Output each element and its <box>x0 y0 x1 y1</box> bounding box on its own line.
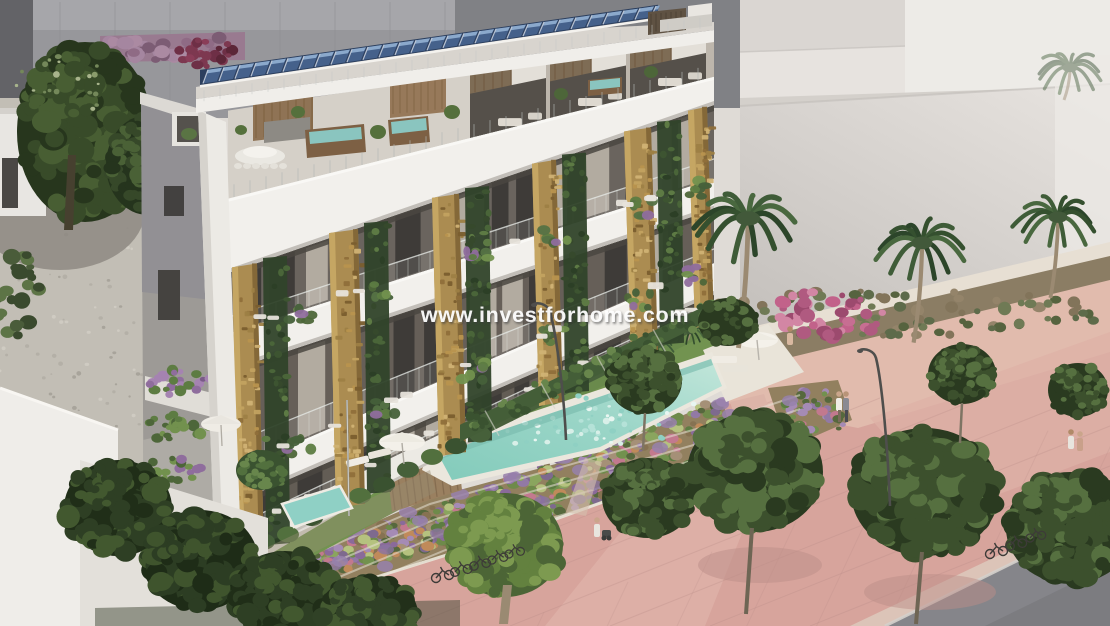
svg-text:www.investforhome.com: www.investforhome.com <box>420 303 689 327</box>
